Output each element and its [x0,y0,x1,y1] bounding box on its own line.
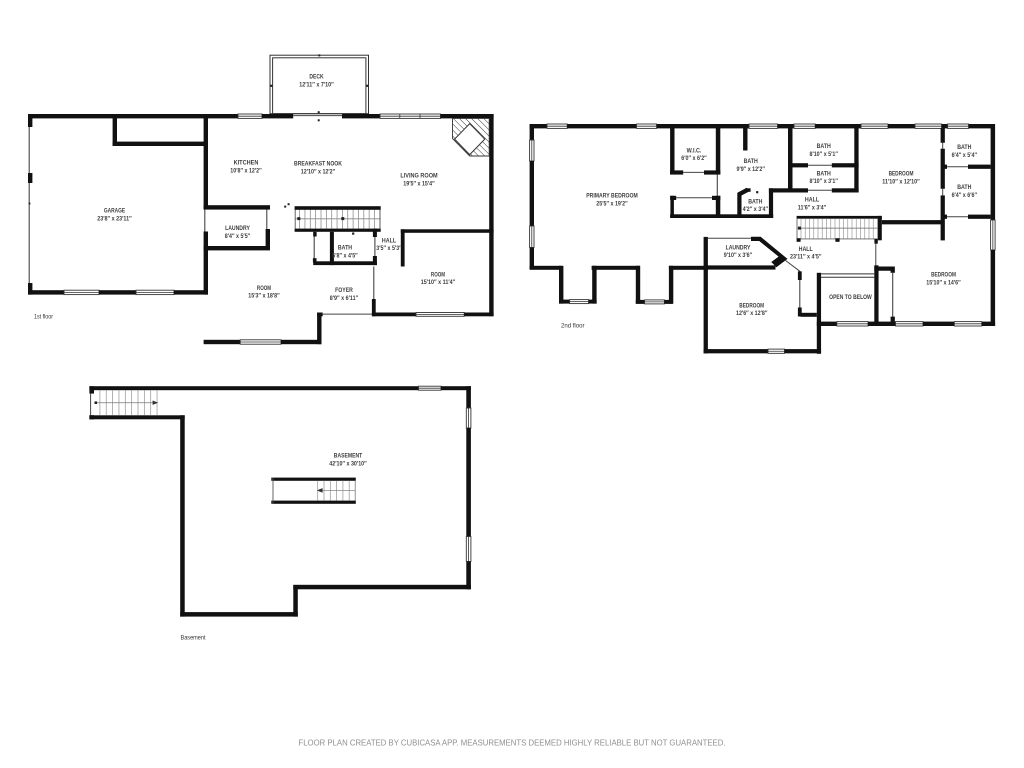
svg-text:15′10″ x 14′6″: 15′10″ x 14′6″ [926,279,960,286]
svg-text:BATH: BATH [748,198,762,205]
svg-text:BEDROOM: BEDROOM [739,302,764,309]
svg-text:10′8″ x 12′2″: 10′8″ x 12′2″ [230,167,261,174]
svg-text:5′8″ x 4′5″: 5′8″ x 4′5″ [332,252,357,259]
svg-text:42′10″ x 30′10″: 42′10″ x 30′10″ [329,460,366,467]
svg-text:LIVING ROOM: LIVING ROOM [400,173,437,180]
svg-text:8′9″ x 6′11″: 8′9″ x 6′11″ [330,295,358,302]
svg-text:BATH: BATH [338,245,352,252]
svg-text:19′5″ x 15′4″: 19′5″ x 15′4″ [403,180,434,187]
svg-text:23′11″ x 4′5″: 23′11″ x 4′5″ [790,254,821,261]
svg-text:HALL: HALL [799,246,813,253]
svg-text:LAUNDRY: LAUNDRY [225,225,250,232]
svg-text:8′10″ x 3′1″: 8′10″ x 3′1″ [809,178,837,185]
svg-text:11′6″ x 3′4″: 11′6″ x 3′4″ [798,204,826,211]
svg-text:DECK: DECK [309,74,323,81]
svg-text:OPEN TO BELOW: OPEN TO BELOW [829,294,872,301]
svg-text:2nd floor: 2nd floor [561,323,585,330]
svg-text:PRIMARY BEDROOM: PRIMARY BEDROOM [586,193,638,200]
svg-text:3′5″ x 5′3″: 3′5″ x 5′3″ [376,245,401,252]
svg-text:HALL: HALL [805,197,819,204]
svg-text:FLOOR PLAN CREATED BY CUBICASA: FLOOR PLAN CREATED BY CUBICASA APP. MEAS… [299,738,726,748]
svg-text:11′10″ x 12′10″: 11′10″ x 12′10″ [882,178,919,185]
svg-text:12′10″ x 12′2″: 12′10″ x 12′2″ [301,168,335,175]
svg-text:8′10″ x 5′1″: 8′10″ x 5′1″ [809,151,837,158]
svg-text:12′6″ x 12′8″: 12′6″ x 12′8″ [736,310,767,317]
svg-text:GARAGE: GARAGE [104,208,126,215]
svg-text:BATH: BATH [957,144,971,151]
svg-text:6′4″ x 5′4″: 6′4″ x 5′4″ [952,152,977,159]
svg-text:Basement: Basement [181,635,206,642]
svg-text:BEDROOM: BEDROOM [931,272,956,279]
svg-text:15′3″ x 18′8″: 15′3″ x 18′8″ [248,293,279,300]
svg-text:BASEMENT: BASEMENT [334,453,362,460]
svg-text:BATH: BATH [957,184,971,191]
svg-text:6′0″ x 6′2″: 6′0″ x 6′2″ [681,155,706,162]
svg-text:ROOM: ROOM [257,285,271,292]
svg-text:1st floor: 1st floor [34,314,54,321]
svg-text:HALL: HALL [382,237,396,244]
svg-text:8′4″ x 5′5″: 8′4″ x 5′5″ [225,233,250,240]
svg-text:LAUNDRY: LAUNDRY [726,244,751,251]
svg-text:4′2″ x 3′4″: 4′2″ x 3′4″ [743,206,768,213]
svg-text:BEDROOM: BEDROOM [889,171,914,178]
svg-text:BATH: BATH [817,143,831,150]
svg-text:BATH: BATH [744,158,758,165]
svg-text:15′10″ x 11′4″: 15′10″ x 11′4″ [421,279,455,286]
svg-text:12′11″ x 7′10″: 12′11″ x 7′10″ [299,81,333,88]
svg-text:25′5″ x 19′2″: 25′5″ x 19′2″ [596,200,627,207]
svg-text:9′10″ x 3′6″: 9′10″ x 3′6″ [724,252,752,259]
svg-text:ROOM: ROOM [431,271,445,278]
svg-text:FOYER: FOYER [335,287,353,294]
svg-text:23′8″ x 23′11″: 23′8″ x 23′11″ [97,215,131,222]
svg-text:BATH: BATH [817,170,831,177]
svg-text:6′4″ x 6′6″: 6′4″ x 6′6″ [952,192,977,199]
svg-text:W.I.C.: W.I.C. [687,147,702,154]
svg-text:BREAKFAST NOOK: BREAKFAST NOOK [294,161,342,168]
svg-text:9′9″ x 12′2″: 9′9″ x 12′2″ [736,166,764,173]
svg-text:KITCHEN: KITCHEN [234,160,259,167]
